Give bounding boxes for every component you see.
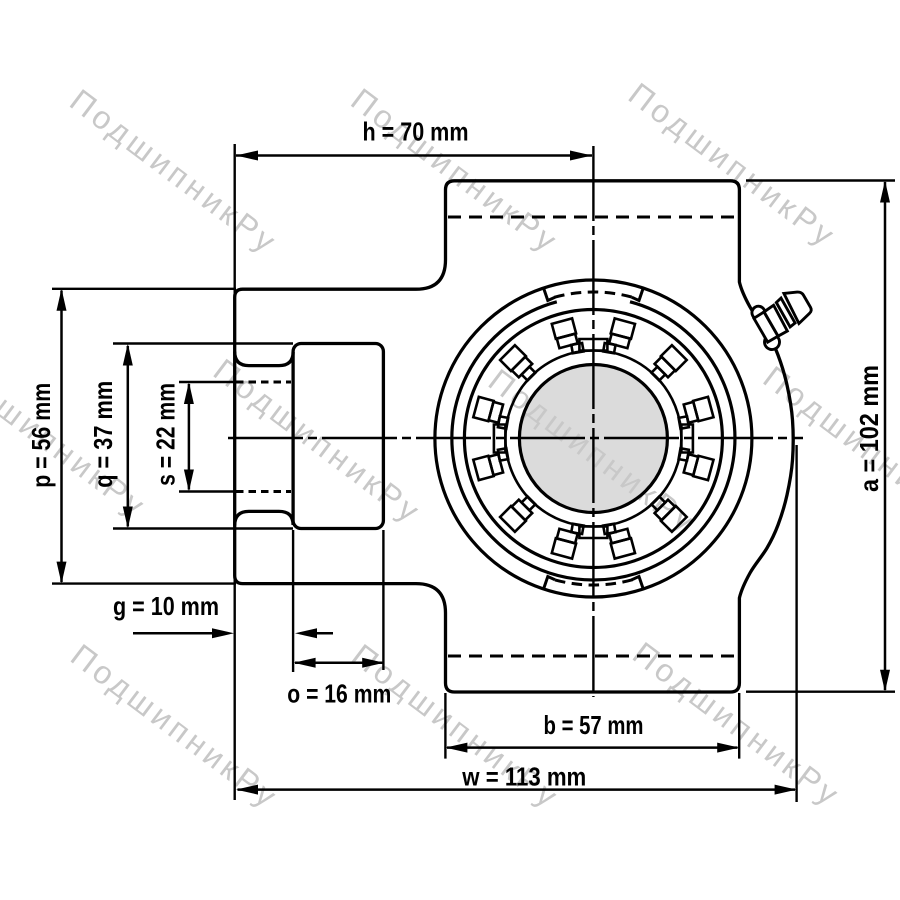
svg-text:p = 56 mm: p = 56 mm (26, 383, 56, 488)
svg-text:a = 102 mm: a = 102 mm (854, 365, 884, 492)
svg-text:o = 16 mm: o = 16 mm (287, 679, 391, 709)
svg-text:g = 10 mm: g = 10 mm (113, 591, 219, 621)
svg-text:h = 70 mm: h = 70 mm (363, 117, 469, 147)
svg-text:b = 57 mm: b = 57 mm (544, 710, 644, 740)
svg-text:w = 113 mm: w = 113 mm (461, 762, 586, 792)
svg-text:q = 37 mm: q = 37 mm (88, 381, 118, 488)
svg-text:s = 22 mm: s = 22 mm (151, 383, 181, 486)
